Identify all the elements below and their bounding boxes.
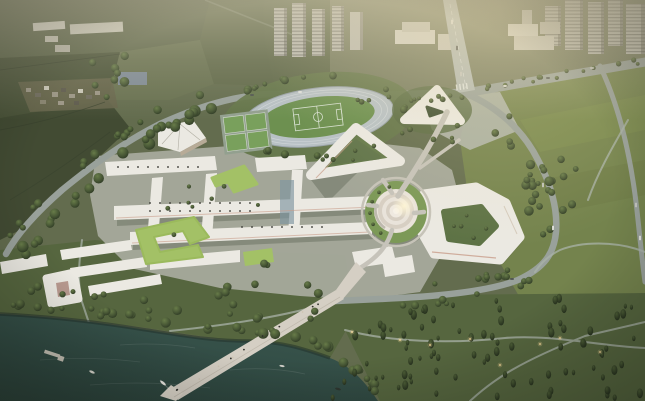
vignette xyxy=(0,0,645,401)
rendering-canvas xyxy=(0,0,645,401)
aerial-rendering xyxy=(0,0,645,401)
